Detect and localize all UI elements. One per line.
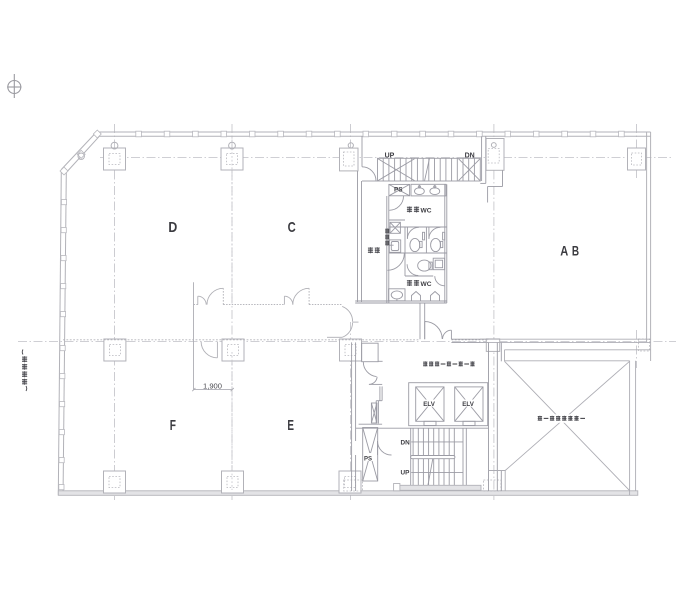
svg-text:1,900: 1,900 (203, 382, 222, 391)
svg-text:D: D (168, 219, 177, 236)
svg-text:C: C (288, 219, 296, 236)
svg-text:A: A (560, 244, 568, 259)
svg-text:WC: WC (421, 208, 432, 215)
svg-text:UP: UP (385, 152, 395, 159)
svg-text:ELV: ELV (462, 401, 474, 408)
svg-text:UP: UP (401, 470, 411, 477)
svg-text:ELV: ELV (423, 401, 435, 408)
svg-text:F: F (170, 417, 176, 434)
svg-text:PS: PS (394, 187, 403, 194)
svg-text:B: B (572, 244, 579, 259)
svg-text:DN: DN (465, 152, 475, 159)
svg-text:PS: PS (364, 456, 372, 462)
svg-text:WC: WC (421, 281, 432, 288)
svg-text:E: E (287, 417, 294, 434)
svg-text:DN: DN (401, 440, 411, 447)
